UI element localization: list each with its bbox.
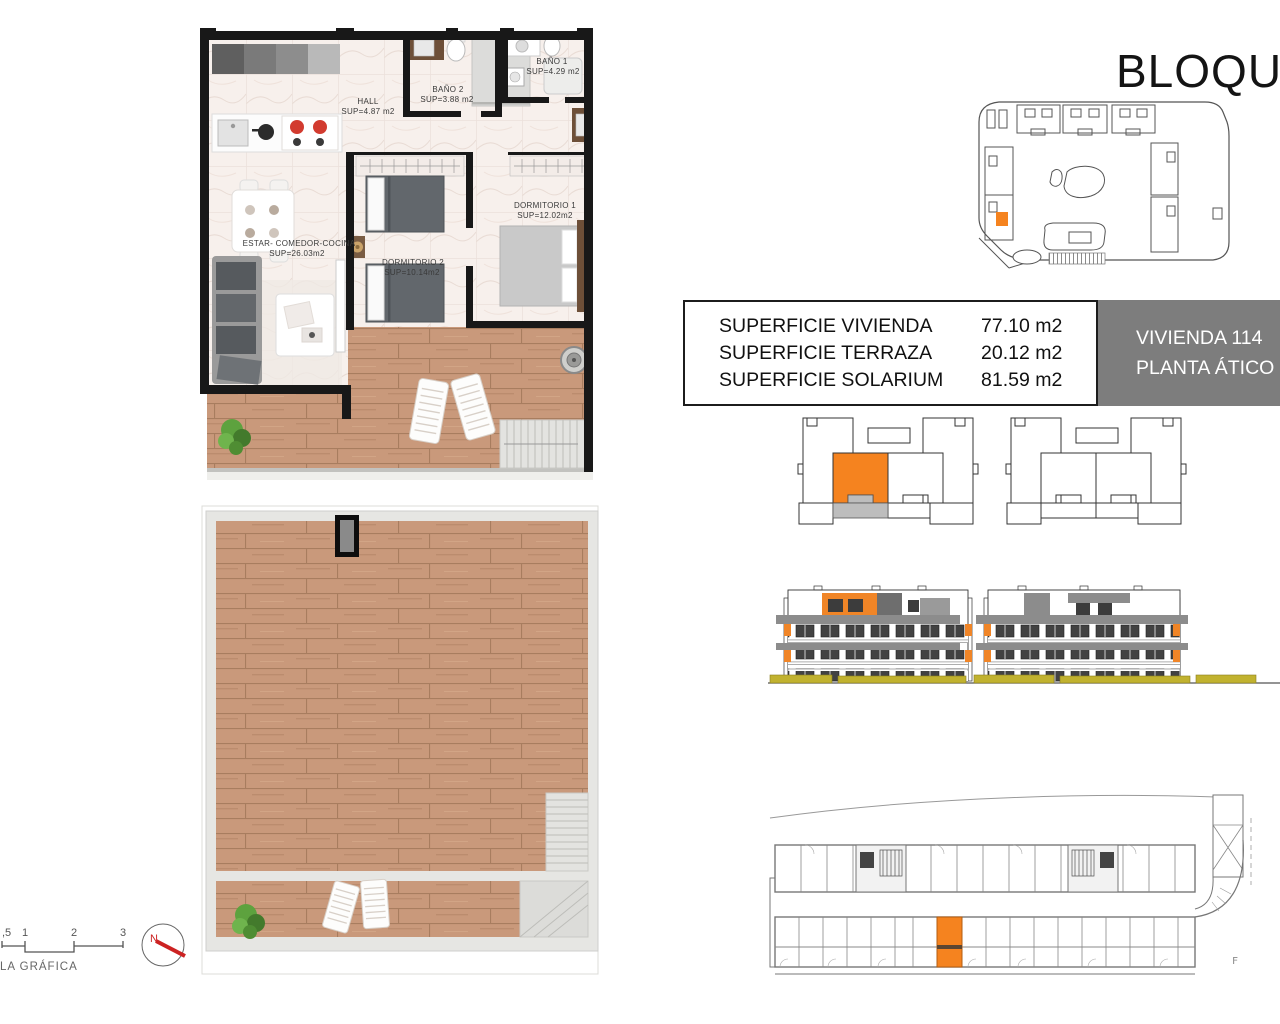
room-label-dorm1: DORMITORIO 1 [514,201,576,210]
ramp [1195,795,1251,917]
table-row: SUPERFICIE TERRAZA 20.12 m2 [719,340,1096,367]
highlighted-unit [996,212,1008,226]
coffee-table [276,294,334,356]
room-sup-bano1: SUP=4.29 m2 [526,67,580,76]
scale-tick: 1 [22,927,28,939]
site-plan [965,90,1260,285]
hedge [974,675,1256,683]
room-sup-dorm2: SUP=10.14m2 [384,268,440,277]
sun-lounger [360,879,389,929]
unit-floor: PLANTA ÁTICO [1136,357,1280,380]
solarium-plan [200,503,600,981]
surface-value: 77.10 m2 [981,313,1062,340]
surface-label: SUPERFICIE TERRAZA [719,340,981,367]
unit-number: VIVIENDA 114 [1136,327,1280,350]
solarium-wood-floor [216,521,588,871]
scale-tick: ,5 [2,927,11,939]
highlighted-parking-space [937,917,962,967]
parking-strip [1049,253,1105,264]
road-line [770,795,1240,818]
elevation-left-building [770,586,972,683]
apartment-floor-plan: HALL SUP=4.87 m2 BAÑO 2 SUP=3.88 m2 BAÑO… [200,28,600,483]
scale-tick: 3 [120,927,126,939]
compass-north-icon: N [142,924,185,966]
room-sup-estar: SUP=26.03m2 [269,249,325,258]
storage-band [775,845,1195,892]
pan [258,124,274,140]
table-row: SUPERFICIE VIVIENDA 77.10 m2 [719,313,1096,340]
room-sup-hall: SUP=4.87 m2 [341,107,395,116]
room-sup-dorm1: SUP=12.02m2 [517,211,573,220]
room-label-hall: HALL [357,97,378,106]
elevation-right-building [974,586,1256,683]
terrace-stairs [500,420,585,468]
table-row: SUPERFICIE SOLARIUM 81.59 m2 [719,367,1096,394]
tv-console [336,260,345,352]
chimney [335,515,359,557]
surface-value: 81.59 m2 [981,367,1062,394]
room-label-bano2: BAÑO 2 [432,85,463,94]
key-plan-plain [998,406,1188,528]
round-table [561,347,587,373]
cooktop [282,116,338,150]
unit-info-box: VIVIENDA 114 PLANTA ÁTICO [1098,300,1280,406]
surface-value: 20.12 m2 [981,340,1062,367]
graphic-scale-bar: ,5 1 2 3 LA GRÁFICA [0,927,126,973]
room-label-bano1: BAÑO 1 [536,57,567,66]
scale-tick: 2 [71,927,77,939]
surface-label: SUPERFICIE SOLARIUM [719,367,981,394]
scale-bar-and-compass: ,5 1 2 3 LA GRÁFICA N [0,912,200,982]
surface-label: SUPERFICIE VIVIENDA [719,313,981,340]
hedge [770,675,966,683]
room-sup-bano2: SUP=3.88 m2 [420,95,474,104]
scale-bar-label: LA GRÁFICA [0,960,78,973]
surface-area-table: SUPERFICIE VIVIENDA 77.10 m2 SUPERFICIE … [683,300,1098,406]
room-label-dorm2: DORMITORIO 2 [382,258,444,267]
key-plan-highlighted [790,406,980,528]
corner-mark: F [1232,956,1238,967]
garage-plan [768,790,1280,990]
room-label-estar: ESTAR- COMEDOR-COCINA [243,239,356,248]
plan-sheet: HALL SUP=4.87 m2 BAÑO 2 SUP=3.88 m2 BAÑO… [0,0,1280,1024]
building-elevations [768,578,1280,690]
